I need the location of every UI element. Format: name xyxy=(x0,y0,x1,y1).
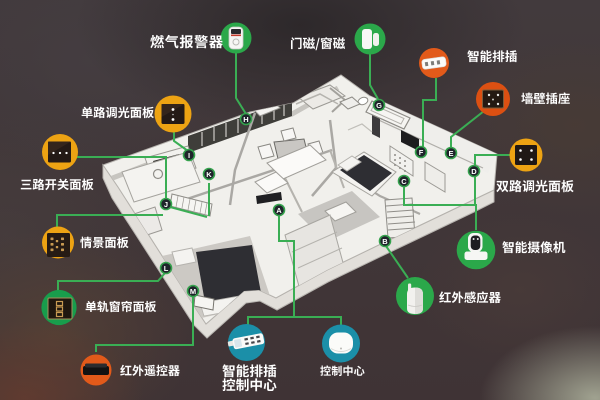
svg-text:L: L xyxy=(164,264,169,273)
svg-text:I: I xyxy=(188,151,190,160)
svg-text:E: E xyxy=(448,149,453,158)
svg-text:K: K xyxy=(206,170,212,179)
svg-text:F: F xyxy=(419,148,424,157)
svg-text:H: H xyxy=(243,115,248,124)
svg-text:B: B xyxy=(382,237,388,246)
svg-text:G: G xyxy=(376,101,382,110)
svg-text:M: M xyxy=(190,287,196,296)
svg-text:C: C xyxy=(401,177,407,186)
svg-text:J: J xyxy=(164,200,168,209)
svg-text:D: D xyxy=(471,167,477,176)
svg-text:A: A xyxy=(276,206,282,215)
